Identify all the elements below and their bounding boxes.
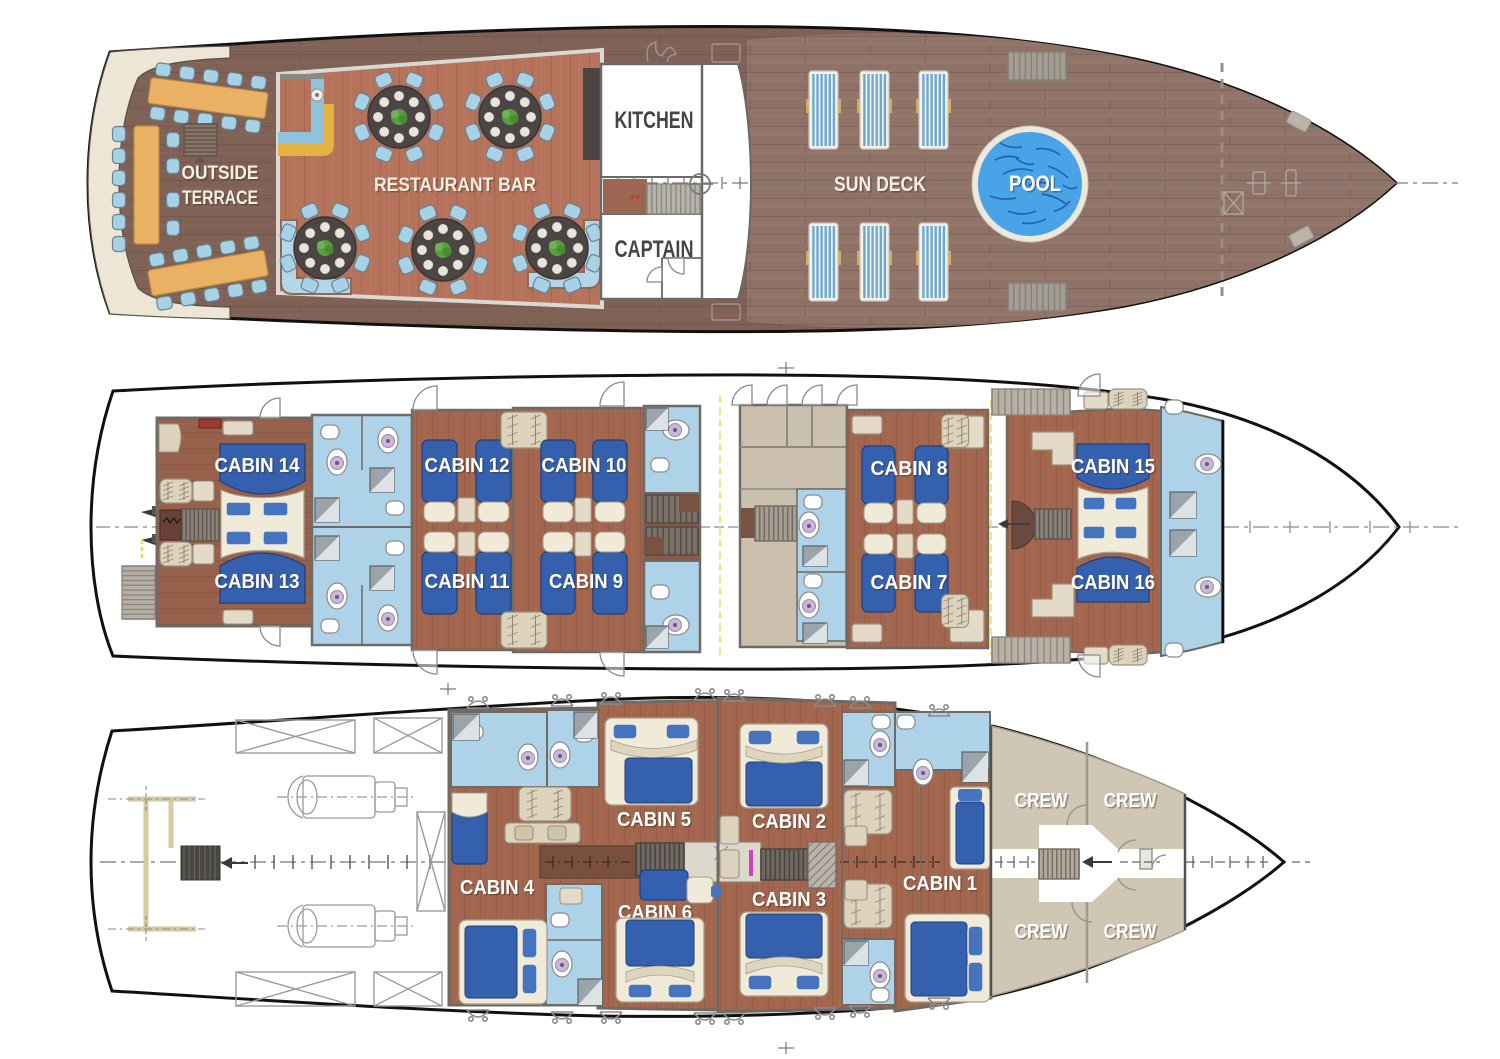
svg-text:CABIN 9: CABIN 9: [549, 570, 623, 593]
svg-text:CREW: CREW: [1015, 920, 1069, 943]
svg-text:CREW: CREW: [1015, 789, 1069, 812]
svg-text:SUN DECK: SUN DECK: [834, 173, 926, 196]
svg-text:CABIN 15: CABIN 15: [1071, 455, 1155, 478]
svg-text:CABIN 1: CABIN 1: [903, 872, 977, 895]
svg-text:CREW: CREW: [1104, 920, 1158, 943]
svg-text:CABIN 8: CABIN 8: [871, 457, 948, 480]
svg-text:CAPTAIN: CAPTAIN: [615, 236, 694, 263]
svg-text:CABIN 5: CABIN 5: [617, 808, 691, 831]
svg-text:CABIN 7: CABIN 7: [871, 571, 948, 594]
svg-text:CABIN 3: CABIN 3: [752, 888, 826, 911]
svg-text:OUTSIDE: OUTSIDE: [182, 162, 259, 184]
svg-text:CABIN 10: CABIN 10: [542, 454, 627, 477]
svg-text:CABIN 14: CABIN 14: [215, 454, 301, 477]
svg-text:CABIN 13: CABIN 13: [215, 570, 300, 593]
svg-text:POOL: POOL: [1009, 171, 1061, 196]
svg-text:TERRACE: TERRACE: [182, 187, 258, 209]
svg-text:KITCHEN: KITCHEN: [615, 107, 694, 134]
svg-text:CABIN 12: CABIN 12: [425, 454, 510, 477]
svg-text:CABIN 16: CABIN 16: [1071, 571, 1155, 594]
svg-text:CABIN 2: CABIN 2: [752, 810, 826, 833]
svg-text:CREW: CREW: [1104, 789, 1158, 812]
svg-text:CABIN 4: CABIN 4: [460, 876, 535, 899]
svg-text:RESTAURANT BAR: RESTAURANT BAR: [374, 175, 536, 196]
svg-text:CABIN 11: CABIN 11: [425, 570, 510, 593]
